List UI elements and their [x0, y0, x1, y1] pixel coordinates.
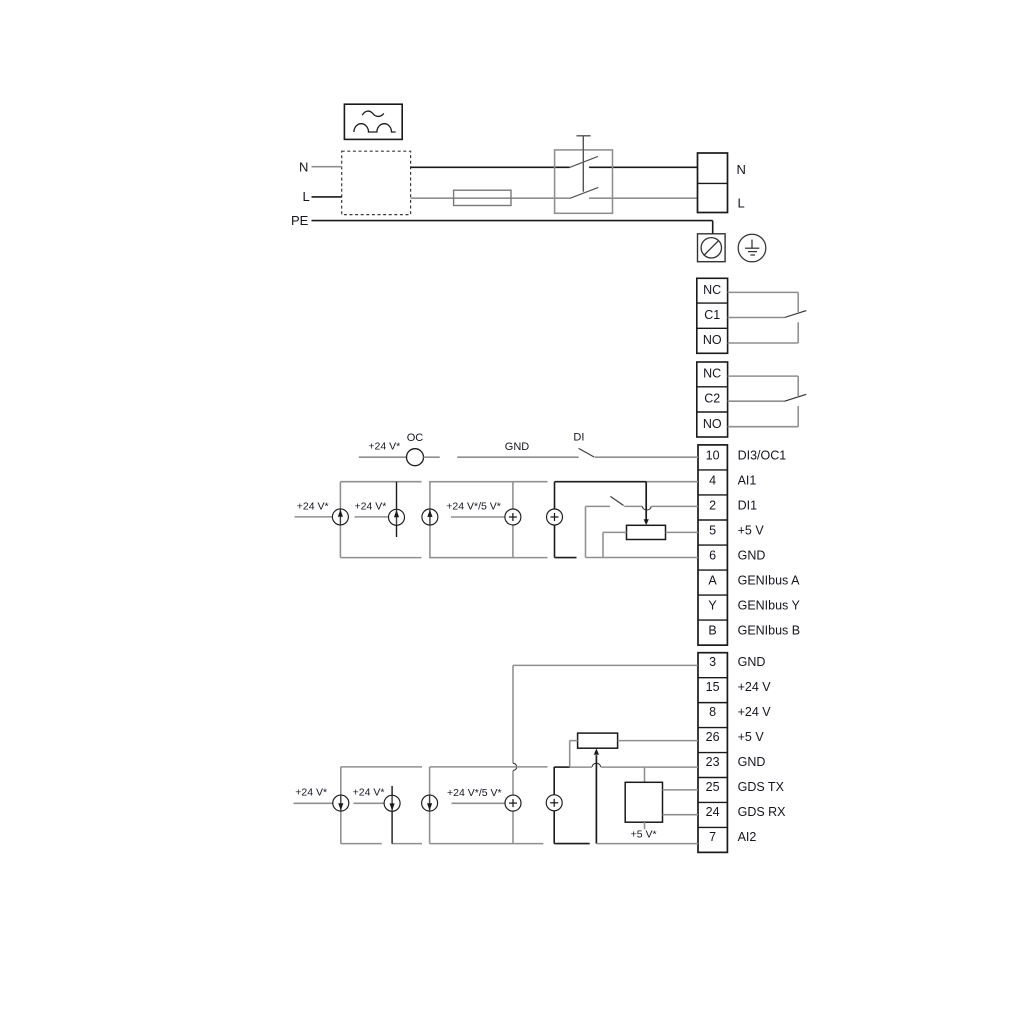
svg-text:N: N [737, 162, 746, 177]
svg-text:7: 7 [709, 830, 716, 844]
svg-text:10: 10 [706, 449, 720, 463]
svg-text:3: 3 [709, 655, 716, 669]
svg-text:25: 25 [706, 780, 720, 794]
svg-text:NC: NC [703, 283, 721, 297]
svg-text:NO: NO [703, 333, 722, 347]
svg-text:OC: OC [407, 432, 424, 444]
svg-text:L: L [738, 196, 745, 211]
svg-text:15: 15 [706, 680, 720, 694]
svg-text:+5 V*: +5 V* [631, 829, 657, 841]
svg-text:+24 V*/5 V*: +24 V*/5 V* [446, 500, 501, 512]
svg-text:5: 5 [709, 524, 716, 538]
svg-text:+24 V*: +24 V* [295, 787, 327, 799]
svg-text:23: 23 [706, 755, 720, 769]
svg-text:+5 V: +5 V [738, 524, 765, 538]
svg-text:4: 4 [709, 474, 716, 488]
svg-text:+24 V: +24 V [738, 705, 772, 719]
svg-text:AI1: AI1 [738, 474, 757, 488]
svg-text:B: B [708, 624, 716, 638]
svg-text:GND: GND [738, 755, 766, 769]
svg-text:GENIbus Y: GENIbus Y [738, 599, 801, 613]
svg-text:2: 2 [709, 499, 716, 513]
svg-text:Y: Y [708, 599, 717, 613]
svg-text:8: 8 [709, 705, 716, 719]
svg-text:DI3/OC1: DI3/OC1 [738, 449, 787, 463]
svg-text:GND: GND [738, 549, 766, 563]
svg-text:DI1: DI1 [738, 499, 758, 513]
svg-text:+24 V*: +24 V* [354, 500, 386, 512]
svg-text:C2: C2 [704, 392, 720, 406]
svg-text:AI2: AI2 [738, 830, 757, 844]
svg-text:26: 26 [706, 730, 720, 744]
svg-text:+5 V: +5 V [738, 730, 765, 744]
svg-text:24: 24 [706, 805, 720, 819]
svg-text:DI: DI [573, 431, 584, 443]
svg-text:+24 V*: +24 V* [368, 441, 400, 453]
svg-text:GND: GND [738, 655, 766, 669]
svg-text:GENIbus A: GENIbus A [738, 574, 800, 588]
svg-text:N: N [299, 159, 308, 174]
svg-text:+24 V*: +24 V* [353, 787, 385, 799]
svg-text:GDS TX: GDS TX [738, 780, 785, 794]
svg-text:GDS RX: GDS RX [738, 805, 787, 819]
svg-text:+24 V*: +24 V* [297, 500, 329, 512]
svg-text:C1: C1 [704, 308, 720, 322]
svg-text:A: A [708, 574, 717, 588]
svg-text:PE: PE [291, 213, 309, 228]
svg-text:GND: GND [505, 441, 530, 453]
svg-text:L: L [303, 189, 310, 204]
svg-text:GENIbus B: GENIbus B [738, 624, 801, 638]
svg-text:+24 V*/5 V*: +24 V*/5 V* [447, 787, 502, 799]
svg-text:+24 V: +24 V [738, 680, 772, 694]
svg-text:NO: NO [703, 417, 722, 431]
svg-text:6: 6 [709, 549, 716, 563]
svg-text:NC: NC [703, 367, 721, 381]
